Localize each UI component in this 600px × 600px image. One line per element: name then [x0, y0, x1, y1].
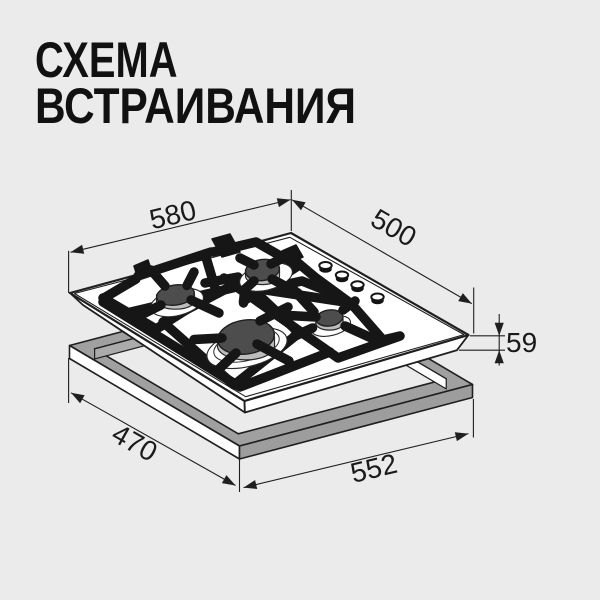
svg-text:ВСТРАИВАНИЯ: ВСТРАИВАНИЯ [35, 77, 356, 134]
svg-text:59: 59 [506, 327, 537, 358]
